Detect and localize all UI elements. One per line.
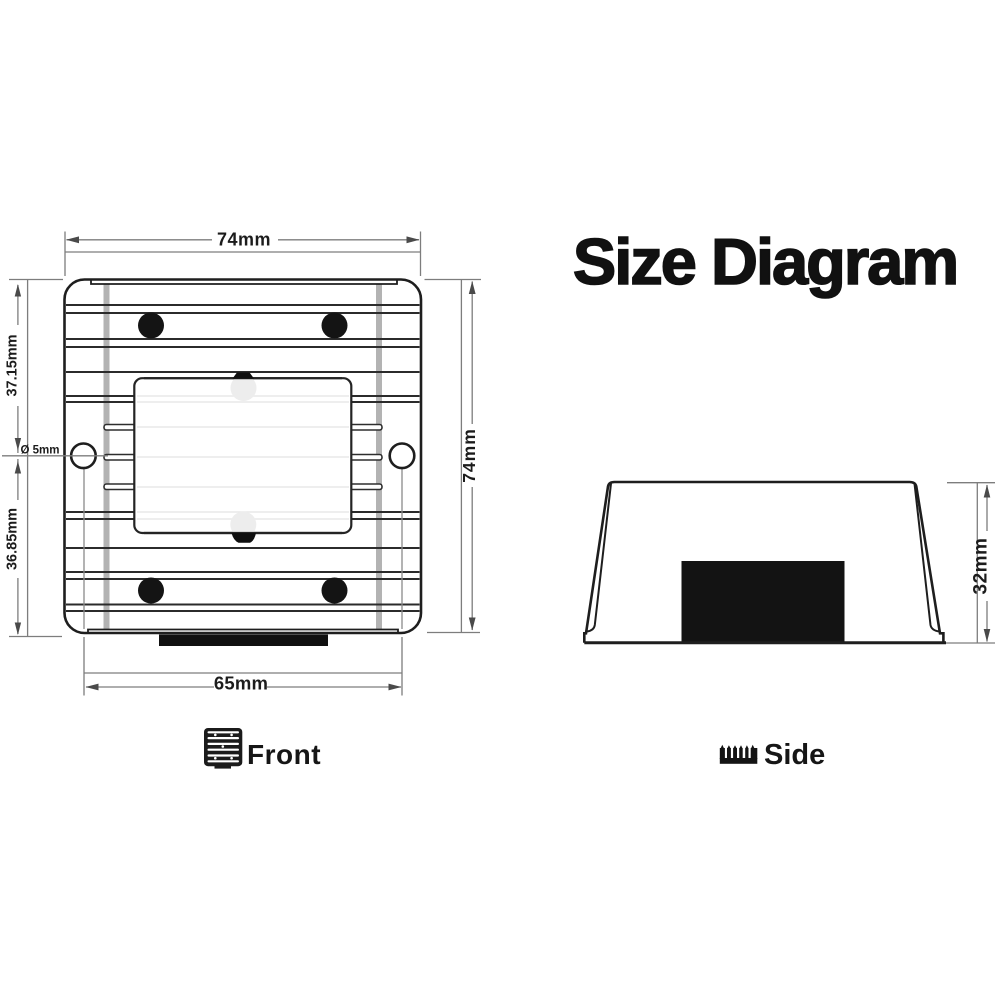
svg-text:74mm: 74mm xyxy=(217,230,271,250)
svg-text:Side: Side xyxy=(764,739,825,771)
svg-text:74mm: 74mm xyxy=(459,428,479,483)
svg-text:36.85mm: 36.85mm xyxy=(5,508,21,570)
svg-text:Ø 5mm: Ø 5mm xyxy=(21,445,60,457)
svg-text:Front: Front xyxy=(247,739,321,770)
svg-text:32mm: 32mm xyxy=(971,538,992,595)
svg-text:65mm: 65mm xyxy=(214,673,268,694)
svg-text:Size Diagram: Size Diagram xyxy=(573,225,957,298)
svg-text:37.15mm: 37.15mm xyxy=(5,334,21,396)
